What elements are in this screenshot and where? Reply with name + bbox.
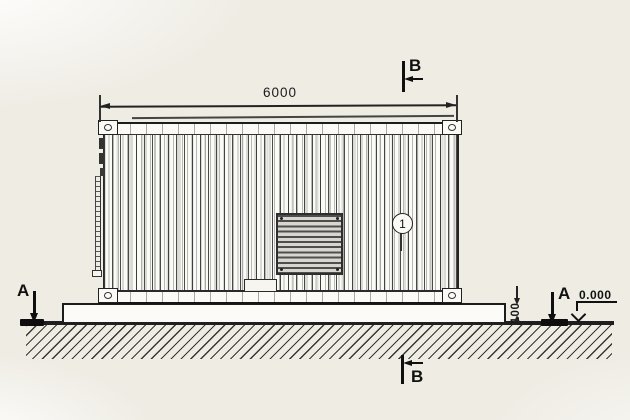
corner-hole-icon — [104, 292, 112, 299]
corner-fitting-bottom-left — [98, 288, 118, 303]
corner-hole-icon — [448, 292, 456, 299]
corner-hole-icon — [104, 124, 112, 131]
section-a-left-arrow — [33, 291, 36, 314]
bolt-icon — [336, 268, 339, 271]
bolt-icon — [336, 217, 339, 220]
foundation-pad — [62, 303, 506, 322]
dimension-line — [100, 104, 456, 107]
corner-fitting-top-right — [442, 120, 462, 135]
callout-1-label: 1 — [399, 217, 406, 231]
door-hinge-lower — [99, 153, 104, 164]
section-a-right-arrowhead-icon — [548, 314, 556, 324]
dimension-arrowhead-left-icon — [100, 103, 110, 109]
top-rail — [98, 122, 462, 135]
door-hinge-upper — [99, 138, 104, 149]
section-b-top-arrowhead-icon — [404, 76, 413, 82]
bolt-icon — [280, 217, 283, 220]
section-a-left-arrowhead-icon — [30, 313, 38, 323]
dimension-arrowhead-right-icon — [446, 102, 456, 108]
ground-level-arrow-icon — [570, 307, 586, 323]
callout-leader — [400, 232, 402, 251]
pad-height-label: 100 — [506, 295, 526, 331]
ground-level-underline — [576, 301, 617, 303]
side-ladder — [95, 176, 101, 276]
section-b-top-label: B — [409, 57, 421, 74]
dimension-extension-right — [456, 95, 458, 122]
callout-1-bubble: 1 — [392, 213, 413, 234]
section-b-bottom-label: B — [411, 368, 423, 385]
ground-level-label: 0.000 — [579, 288, 612, 302]
corner-fitting-bottom-right — [442, 288, 462, 303]
access-plate — [244, 279, 277, 292]
bolt-icon — [280, 268, 283, 271]
dimension-extension-left — [99, 95, 101, 122]
length-dimension-label: 6000 — [245, 85, 315, 100]
bottom-rail — [98, 290, 462, 304]
pad-height-arrowhead-up-icon — [514, 315, 520, 322]
section-a-left-label: A — [17, 282, 29, 299]
section-b-bottom-arrowhead-icon — [403, 360, 412, 366]
louver-grille — [276, 213, 343, 275]
roof-line — [132, 115, 454, 119]
section-a-right-arrow — [551, 292, 554, 315]
door-hinge-small — [100, 168, 104, 176]
corner-hole-icon — [448, 124, 456, 131]
section-a-right-label: A — [558, 285, 570, 302]
ladder-foot — [92, 270, 102, 277]
corner-fitting-top-left — [98, 120, 118, 135]
drawing-canvas: 1 6000 B B A A 100 0.000 — [0, 0, 630, 420]
